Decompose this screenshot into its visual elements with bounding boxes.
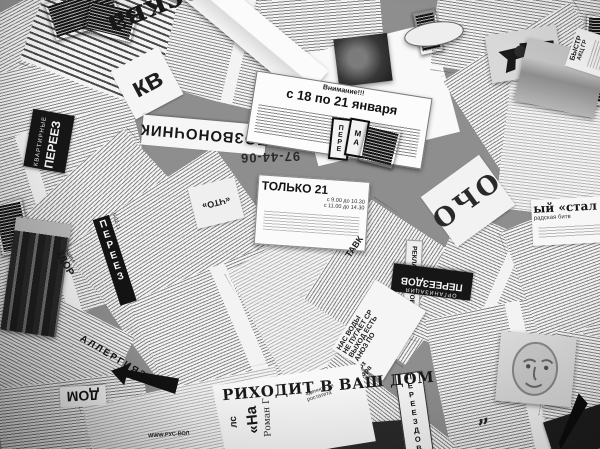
dom-scrap: ДОМ bbox=[60, 385, 107, 407]
face-icon bbox=[498, 334, 573, 404]
newspaper-collage-photo: осква кв КВАРТИРНЫЕ ПЕРЕЕЗ ПОЗВОНОЧНИК В… bbox=[0, 0, 600, 449]
kv-text: кв bbox=[126, 63, 167, 104]
ls-vertical: лс bbox=[229, 416, 242, 449]
chto-text: «ЧТО» bbox=[201, 195, 231, 212]
photo-fragment bbox=[333, 33, 392, 87]
ls-text: лс bbox=[229, 416, 240, 429]
na-text: «На bbox=[244, 405, 263, 434]
url-text: WWW.РУС-ВОЛ bbox=[148, 431, 190, 440]
stal-headline-scrap: ый «стал радская битв bbox=[531, 196, 600, 246]
roman-text: Роман Г bbox=[263, 398, 274, 437]
phone-scrap: 97-44-06 bbox=[240, 147, 301, 166]
portrait-sketch bbox=[495, 331, 577, 407]
dom-text: ДОМ bbox=[66, 387, 99, 405]
stal-small-print bbox=[534, 218, 600, 244]
phone-number-text: 97-44-06 bbox=[240, 149, 301, 166]
pere-text: ПЕРЕ bbox=[335, 125, 345, 154]
url-fragment: WWW.РУС-ВОЛ bbox=[147, 423, 190, 443]
